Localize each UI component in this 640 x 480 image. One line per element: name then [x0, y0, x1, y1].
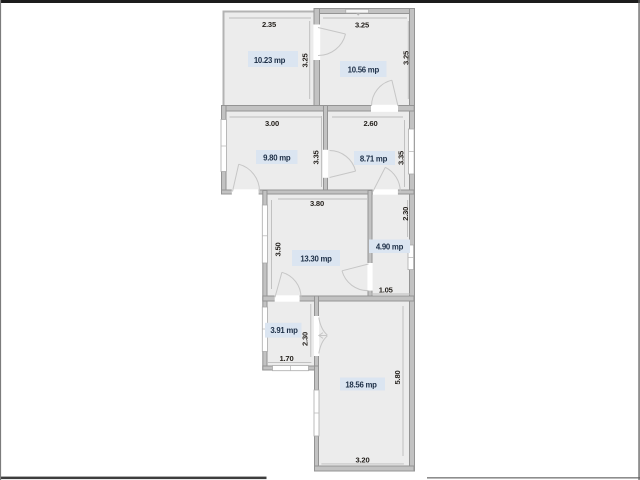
- svg-text:2.30: 2.30: [301, 332, 310, 346]
- svg-text:3.35: 3.35: [312, 150, 321, 165]
- svg-text:2.60: 2.60: [364, 119, 378, 128]
- svg-text:10.56 mp: 10.56 mp: [348, 66, 380, 75]
- svg-text:3.25: 3.25: [402, 50, 411, 65]
- svg-text:9.80 mp: 9.80 mp: [263, 154, 291, 163]
- svg-text:3.20: 3.20: [356, 456, 370, 465]
- svg-text:3.91 mp: 3.91 mp: [270, 326, 298, 335]
- svg-text:1.70: 1.70: [280, 354, 294, 363]
- svg-text:13.30 mp: 13.30 mp: [300, 255, 332, 264]
- svg-text:4.90 mp: 4.90 mp: [376, 243, 404, 252]
- svg-text:3.00: 3.00: [265, 119, 279, 128]
- svg-text:2.30: 2.30: [401, 207, 410, 221]
- svg-text:3.25: 3.25: [301, 53, 310, 68]
- svg-text:1.05: 1.05: [379, 285, 394, 294]
- svg-text:3.35: 3.35: [397, 150, 406, 165]
- svg-text:3.80: 3.80: [310, 199, 324, 208]
- svg-text:2.35: 2.35: [262, 20, 277, 29]
- svg-text:18.56 mp: 18.56 mp: [345, 380, 377, 389]
- svg-text:3.50: 3.50: [274, 243, 283, 257]
- svg-text:3.25: 3.25: [355, 21, 370, 30]
- svg-text:8.71 mp: 8.71 mp: [360, 155, 388, 164]
- svg-text:5.80: 5.80: [393, 371, 402, 385]
- svg-text:10.23 mp: 10.23 mp: [254, 56, 286, 65]
